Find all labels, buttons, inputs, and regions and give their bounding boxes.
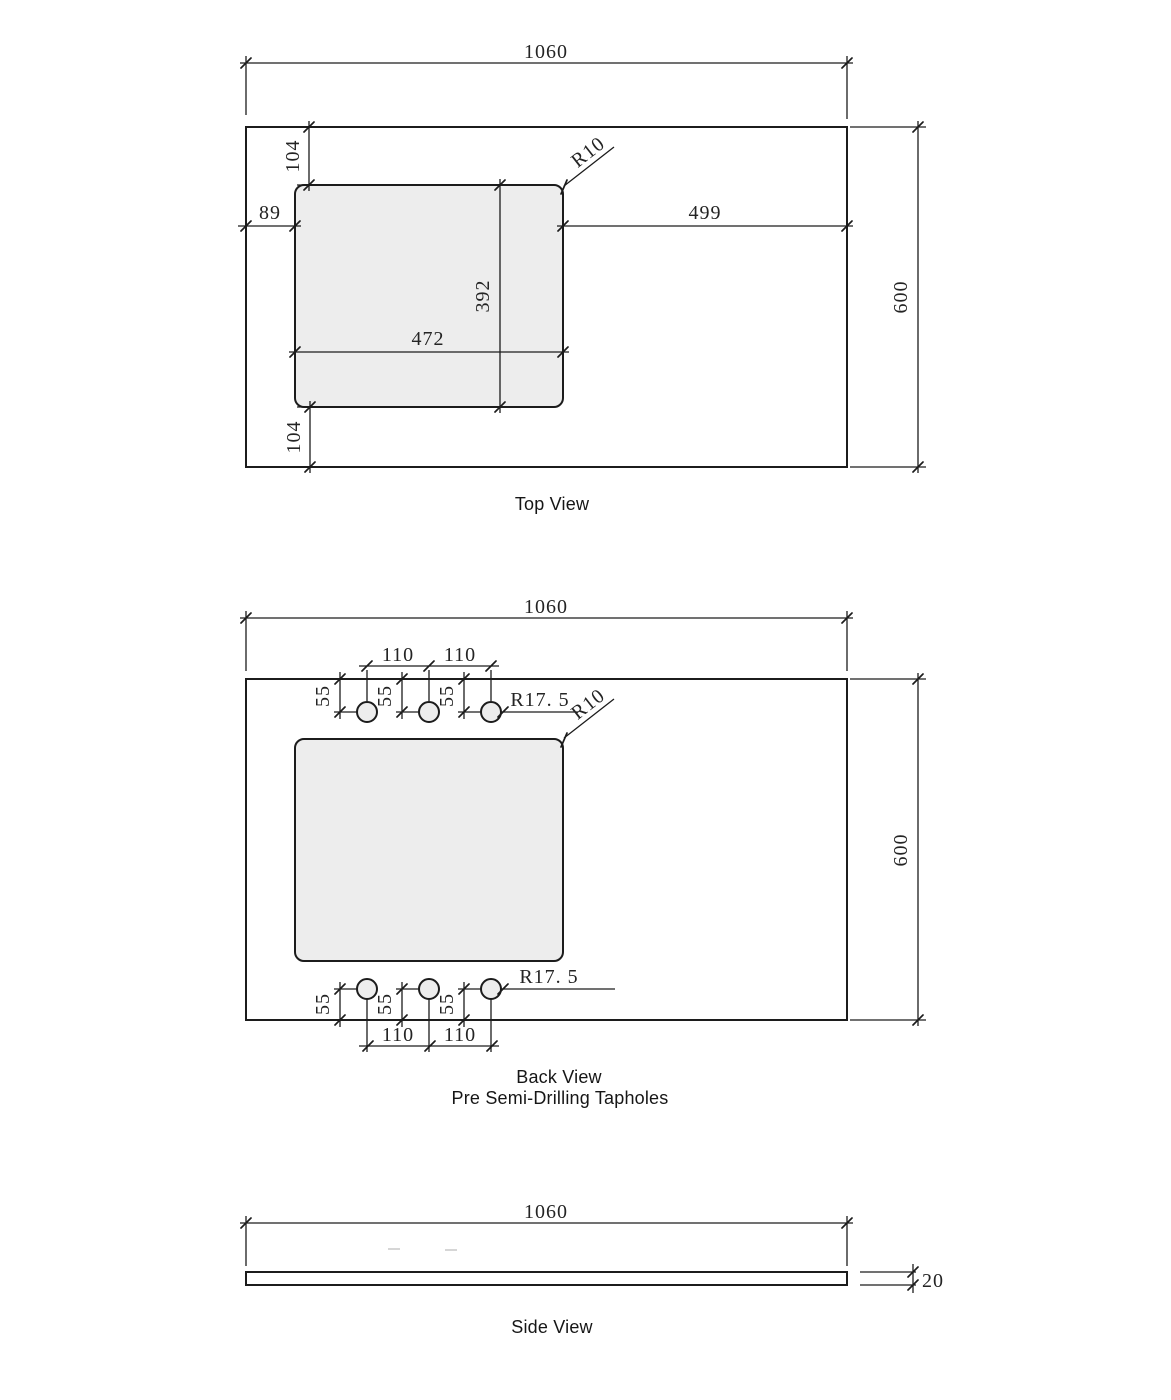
dim-hole-offset-top-1: 55: [312, 685, 334, 707]
top-view-title: Top View: [515, 494, 590, 514]
semi-drill-marks: [388, 1249, 457, 1250]
dim-left-offset-label: 89: [259, 202, 281, 224]
dim-bottom-offset-label: 104: [283, 421, 305, 454]
dim-right-offset-label: 499: [689, 202, 722, 224]
dim-hole-offset-top-2: 55: [374, 685, 396, 707]
dim-overall-width-label: 1060: [524, 41, 568, 63]
dim-overall-width-label-side: 1060: [524, 1201, 568, 1223]
dim-taphole-radius-top: R17. 5: [510, 689, 569, 711]
dim-hole-offset-top-3: 55: [436, 685, 458, 707]
back-view-title: Back View: [516, 1067, 602, 1087]
dim-overall-depth-label: 600: [890, 281, 912, 314]
taphole-bottom-3: [481, 979, 501, 999]
dim-overall-depth-label-back: 600: [890, 834, 912, 867]
drawing-canvas: 1060 104 89 499 392 472 104 R10 600 Top …: [0, 0, 1171, 1400]
dim-thickness-label: 20: [922, 1270, 944, 1292]
dim-hole-pitch-top-2: 110: [444, 644, 476, 666]
dim-taphole-radius-bottom: R17. 5: [519, 966, 578, 988]
dim-cutout-width-label: 472: [412, 328, 445, 350]
side-view: 1060 20 Side View: [240, 1201, 944, 1337]
taphole-top-3: [481, 702, 501, 722]
dim-hole-pitch-bottom-2: 110: [444, 1024, 476, 1046]
dim-hole-pitch-bottom-1: 110: [382, 1024, 414, 1046]
dim-cutout-depth-label: 392: [472, 280, 494, 313]
top-view: 1060 104 89 499 392 472 104 R10 600 Top …: [238, 41, 926, 514]
dim-top-offset-label: 104: [282, 140, 304, 173]
dim-hole-offset-bottom-1: 55: [312, 993, 334, 1015]
technical-drawing: 1060 104 89 499 392 472 104 R10 600 Top …: [0, 0, 1171, 1400]
sink-cutout: [295, 185, 563, 407]
sink-cutout-back: [295, 739, 563, 961]
back-view: 1060 110 110 55 55 55 R17. 5 R10 55 55 5…: [240, 596, 926, 1108]
dim-overall-width-label-back: 1060: [524, 596, 568, 618]
countertop-slab-side: [246, 1272, 847, 1285]
dim-hole-offset-bottom-2: 55: [374, 993, 396, 1015]
dim-hole-offset-bottom-3: 55: [436, 993, 458, 1015]
dim-hole-pitch-top-1: 110: [382, 644, 414, 666]
side-view-title: Side View: [511, 1317, 593, 1337]
back-view-subtitle: Pre Semi-Drilling Tapholes: [452, 1088, 669, 1108]
